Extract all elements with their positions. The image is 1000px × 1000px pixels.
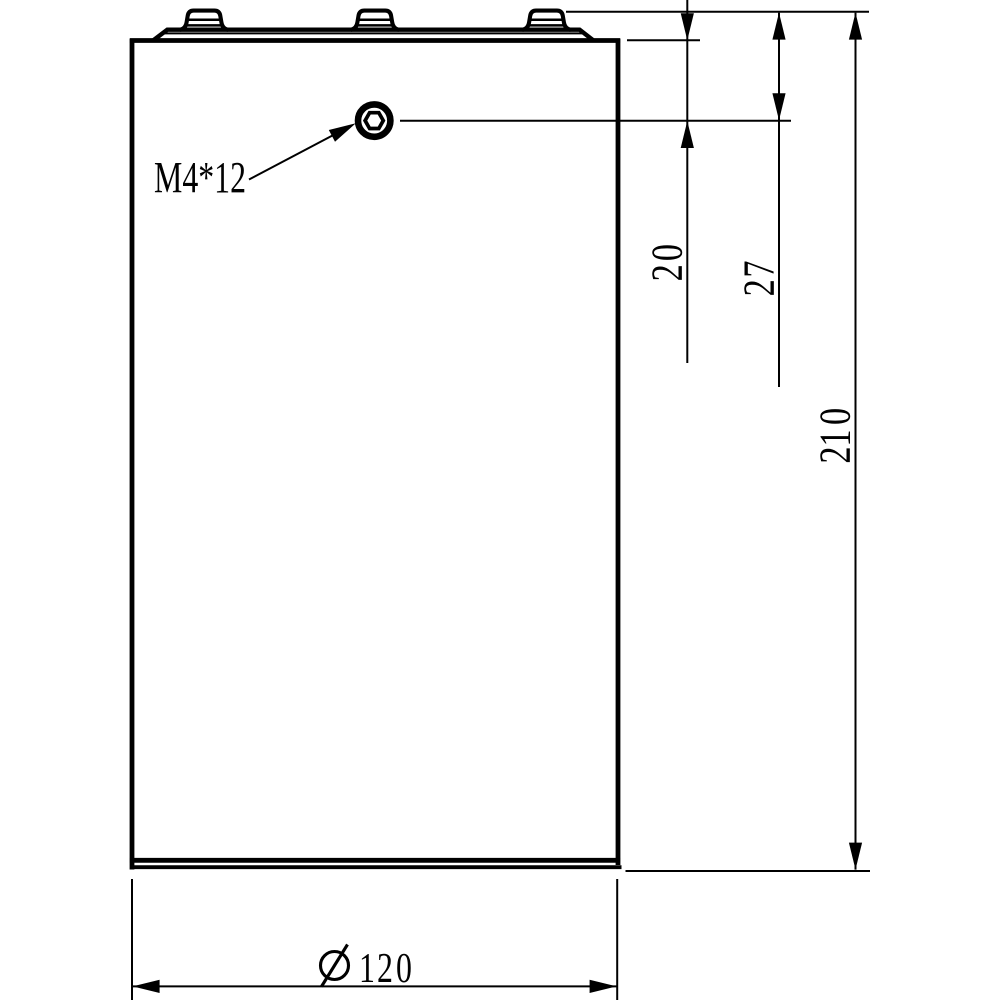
svg-text:0: 0 bbox=[396, 946, 412, 992]
svg-text:2: 2 bbox=[377, 946, 393, 992]
svg-text:0: 0 bbox=[642, 244, 691, 261]
svg-text:7: 7 bbox=[734, 260, 783, 277]
svg-text:1: 1 bbox=[810, 430, 859, 447]
svg-text:2: 2 bbox=[810, 446, 859, 463]
svg-text:2: 2 bbox=[734, 279, 783, 296]
svg-text:M4*12: M4*12 bbox=[154, 153, 246, 202]
svg-text:2: 2 bbox=[642, 264, 691, 281]
svg-text:0: 0 bbox=[810, 408, 859, 425]
svg-text:1: 1 bbox=[359, 946, 375, 992]
